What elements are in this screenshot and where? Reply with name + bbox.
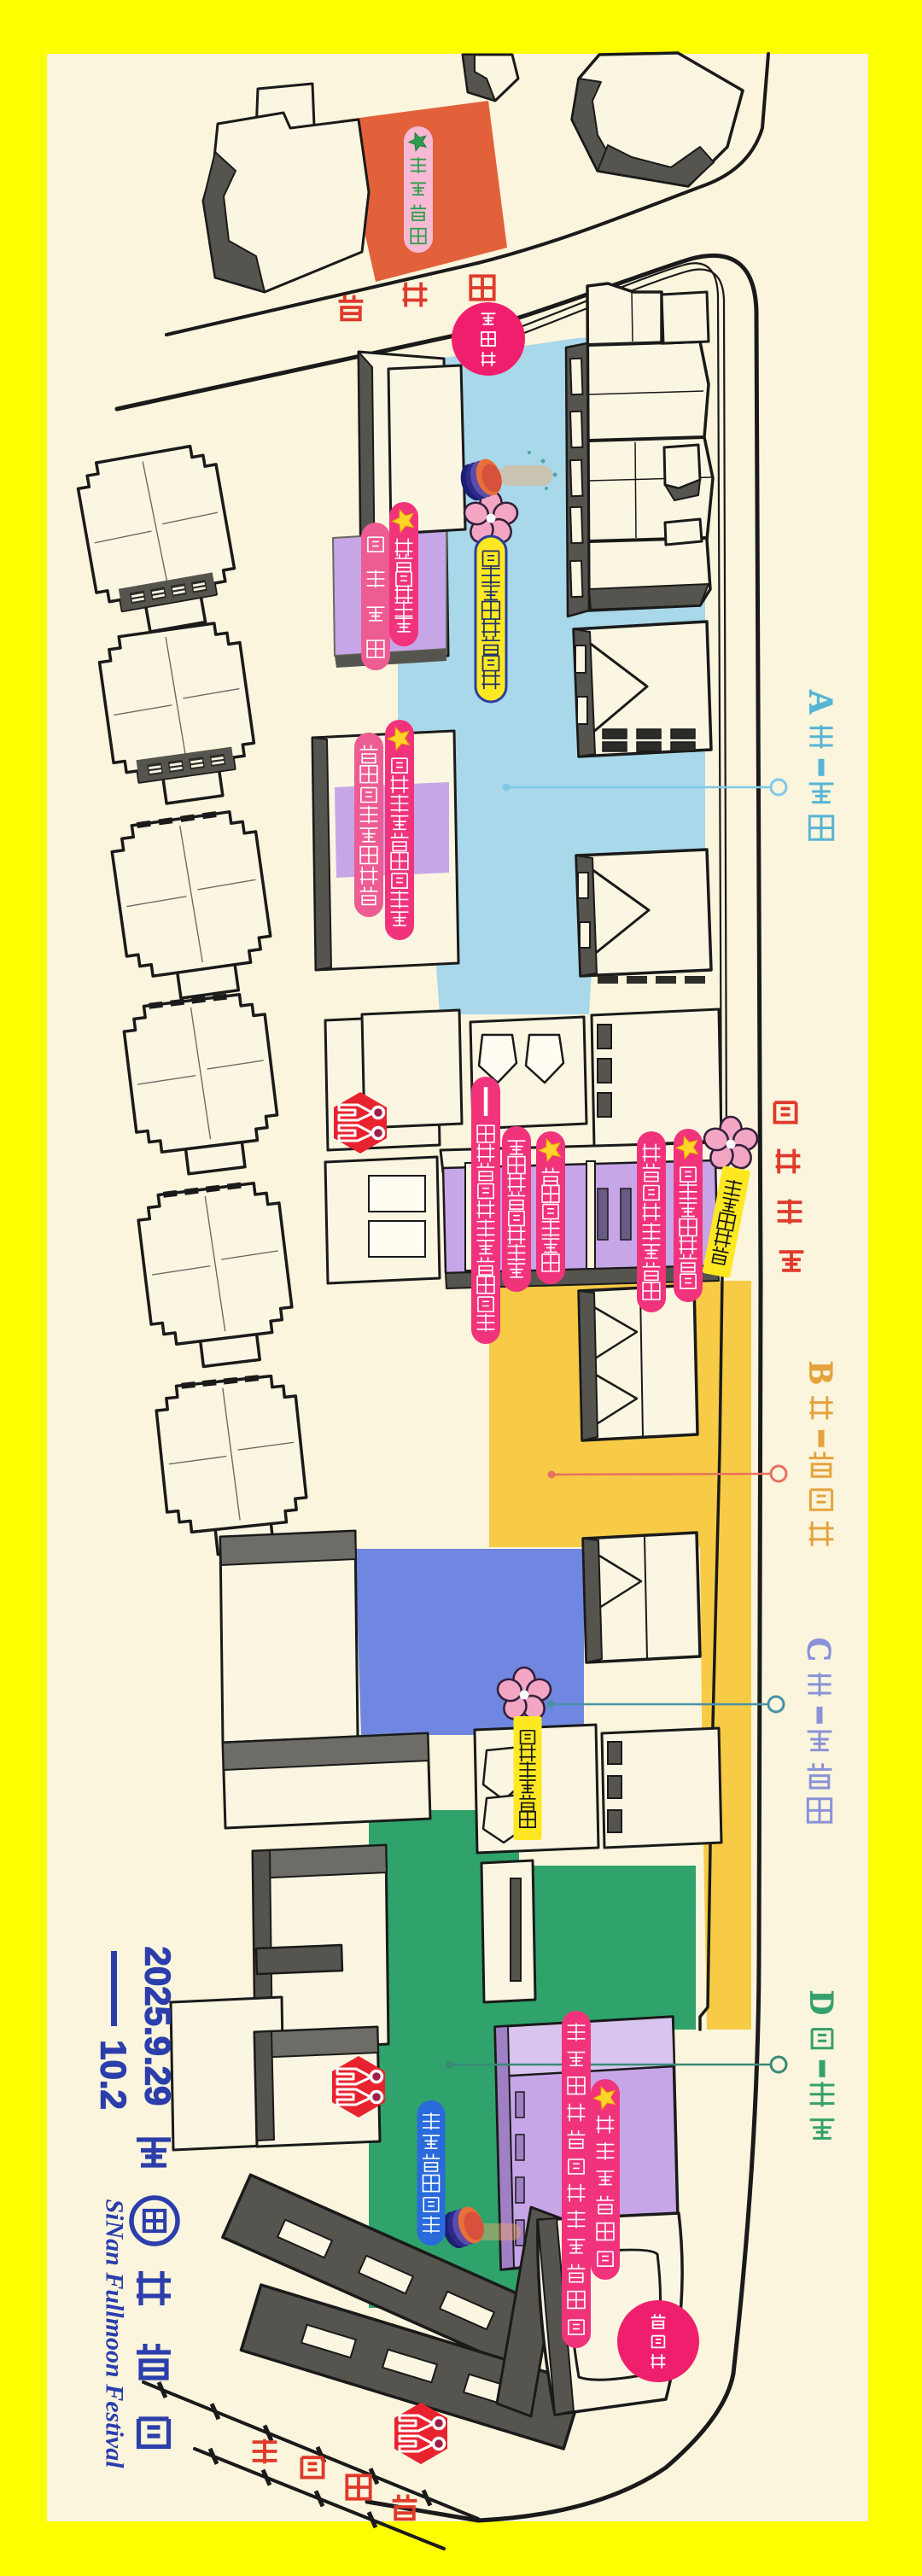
- svg-text:A: A: [802, 690, 841, 715]
- svg-text:D: D: [803, 1991, 842, 2016]
- svg-text:B: B: [802, 1362, 841, 1385]
- svg-text:2025.9.29: 2025.9.29: [138, 1947, 178, 2106]
- svg-text:SiNan Fullmoon Festival: SiNan Fullmoon Festival: [101, 2199, 129, 2468]
- svg-text:C: C: [801, 1638, 839, 1662]
- svg-text:10.2: 10.2: [94, 2040, 134, 2110]
